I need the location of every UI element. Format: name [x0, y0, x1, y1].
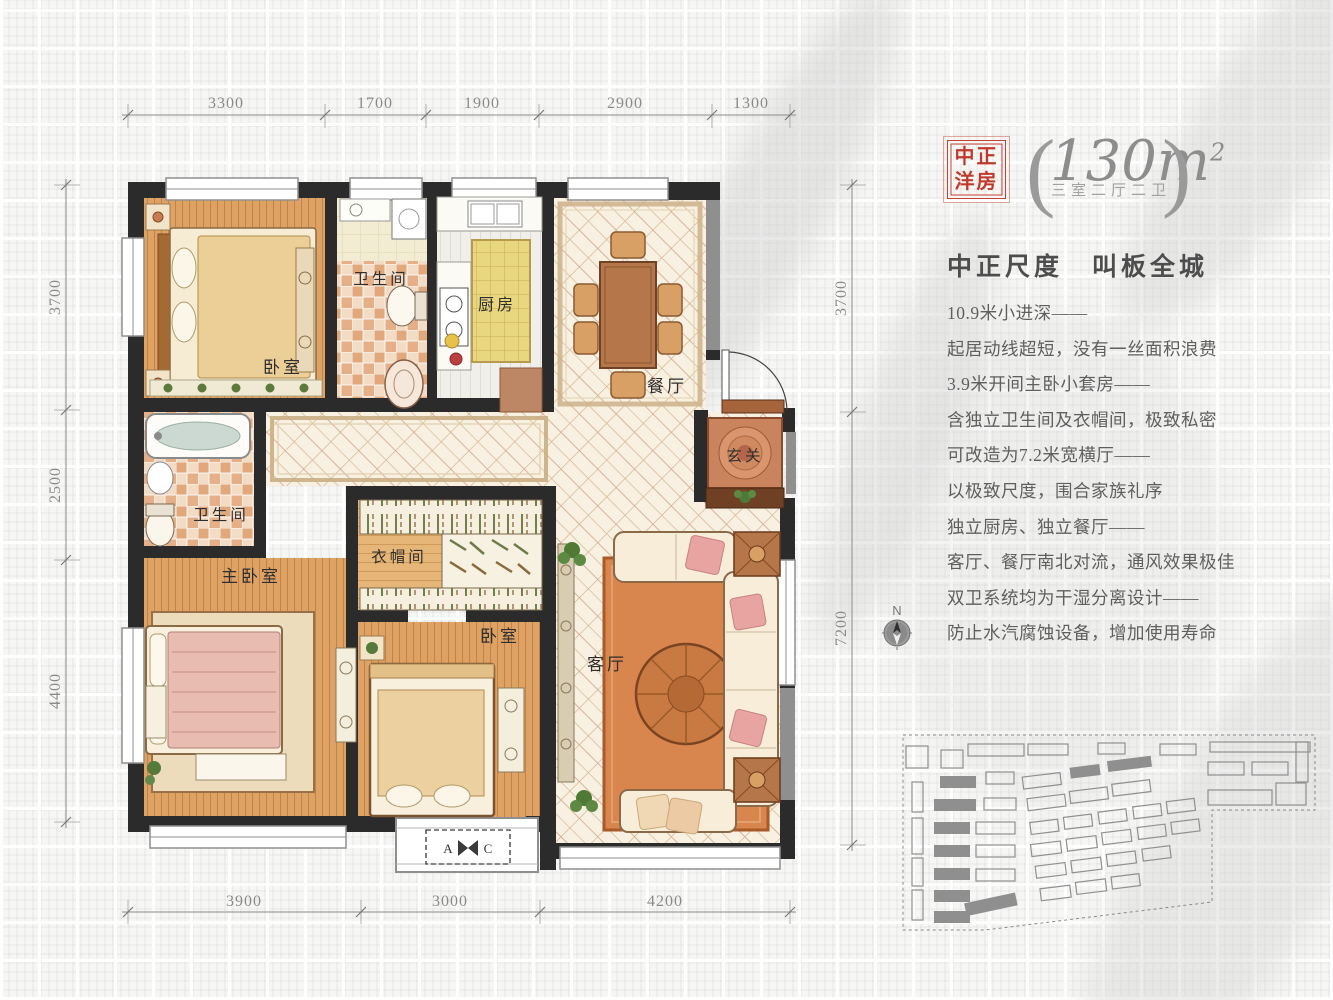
shower-tray [385, 360, 423, 408]
dim-top-1: 3300 [208, 95, 244, 112]
room-label-entry: 玄关 [726, 447, 763, 465]
dresser [296, 248, 314, 372]
wardrobe [442, 534, 542, 588]
feature-line: 起居动线超短，没有一丝面积浪费 [947, 332, 1292, 368]
dim-top-5: 1300 [733, 95, 769, 112]
floorplan-poster: A C [0, 0, 1333, 1000]
feature-line: 10.9米小进深—— [947, 296, 1292, 332]
cabinet [500, 368, 542, 412]
room-label-bedroom-top: 卧室 [263, 358, 303, 377]
sink [468, 201, 522, 227]
wardrobe [360, 588, 542, 610]
room-label-bath-master: 卫生间 [193, 506, 249, 524]
feature-line: 双卫系统均为干湿分离设计—— [947, 581, 1292, 617]
feature-line: 含独立卫生间及衣帽间，极致私密 [947, 403, 1292, 439]
room-label-cloakroom: 衣帽间 [371, 548, 427, 566]
wardrobe [360, 500, 542, 534]
room-label-dining: 餐厅 [647, 377, 687, 396]
compass-north-label: N [892, 603, 901, 618]
dim-bottom-1: 3900 [226, 893, 262, 910]
room-label-living: 客厅 [587, 655, 627, 674]
ac-label-a: A [443, 841, 453, 856]
selling-point-headline: 中正尺度 叫板全城 [947, 247, 1208, 283]
dim-right-1: 3700 [833, 280, 850, 316]
room-label-bedroom-bottom: 卧室 [480, 627, 520, 646]
side-cabinet [146, 686, 166, 738]
washer [392, 199, 426, 239]
toilet [387, 286, 417, 326]
feature-line: 客厅、餐厅南北对流，通风效果极佳 [947, 545, 1292, 581]
dim-left-3: 4400 [47, 673, 64, 709]
room-label-bath-top: 卫生间 [353, 270, 409, 288]
dim-bottom-3: 4200 [647, 893, 683, 910]
dim-bottom-2: 3000 [432, 893, 468, 910]
dining-table [600, 262, 656, 368]
shoe-cabinet [722, 400, 784, 413]
feature-list: 10.9米小进深—— 起居动线超短，没有一丝面积浪费 3.9米开间主卧小套房——… [947, 296, 1292, 652]
tv-console [558, 544, 574, 782]
feature-line: 独立厨房、独立餐厅—— [947, 510, 1292, 546]
dim-left-1: 3700 [47, 279, 64, 315]
area-superscript: 2 [1210, 138, 1225, 166]
foot-bench [196, 754, 286, 780]
side-console [498, 688, 524, 772]
ac-balcony: A C [396, 818, 538, 872]
dim-right-2: 7200 [833, 610, 850, 646]
feature-line: 3.9米开间主卧小套房—— [947, 367, 1292, 403]
paren-close-decoration: ) [1162, 128, 1191, 216]
layout-subtitle: 三室二厅二卫 [1051, 179, 1171, 200]
badge-line1: 中正 [955, 145, 999, 170]
badge-line2: 洋房 [955, 170, 999, 195]
feature-line: 以极致尺度，围合家族礼序 [947, 474, 1292, 510]
floor-corridor [266, 412, 554, 486]
feature-line: 可改造为7.2米宽横厅—— [947, 438, 1292, 474]
dim-top-2: 1700 [357, 95, 393, 112]
ac-label-c: C [484, 841, 493, 856]
dim-top-3: 1900 [464, 95, 500, 112]
vanity [340, 199, 390, 221]
room-label-kitchen: 厨房 [478, 296, 516, 314]
dim-top-4: 2900 [607, 95, 643, 112]
room-label-master-bedroom: 主卧室 [221, 567, 281, 586]
feature-line: 防止水汽腐蚀设备，增加使用寿命 [947, 616, 1292, 652]
project-badge: 中正 洋房 [947, 140, 1006, 199]
sink [147, 462, 173, 494]
dim-left-2: 2500 [47, 467, 64, 503]
